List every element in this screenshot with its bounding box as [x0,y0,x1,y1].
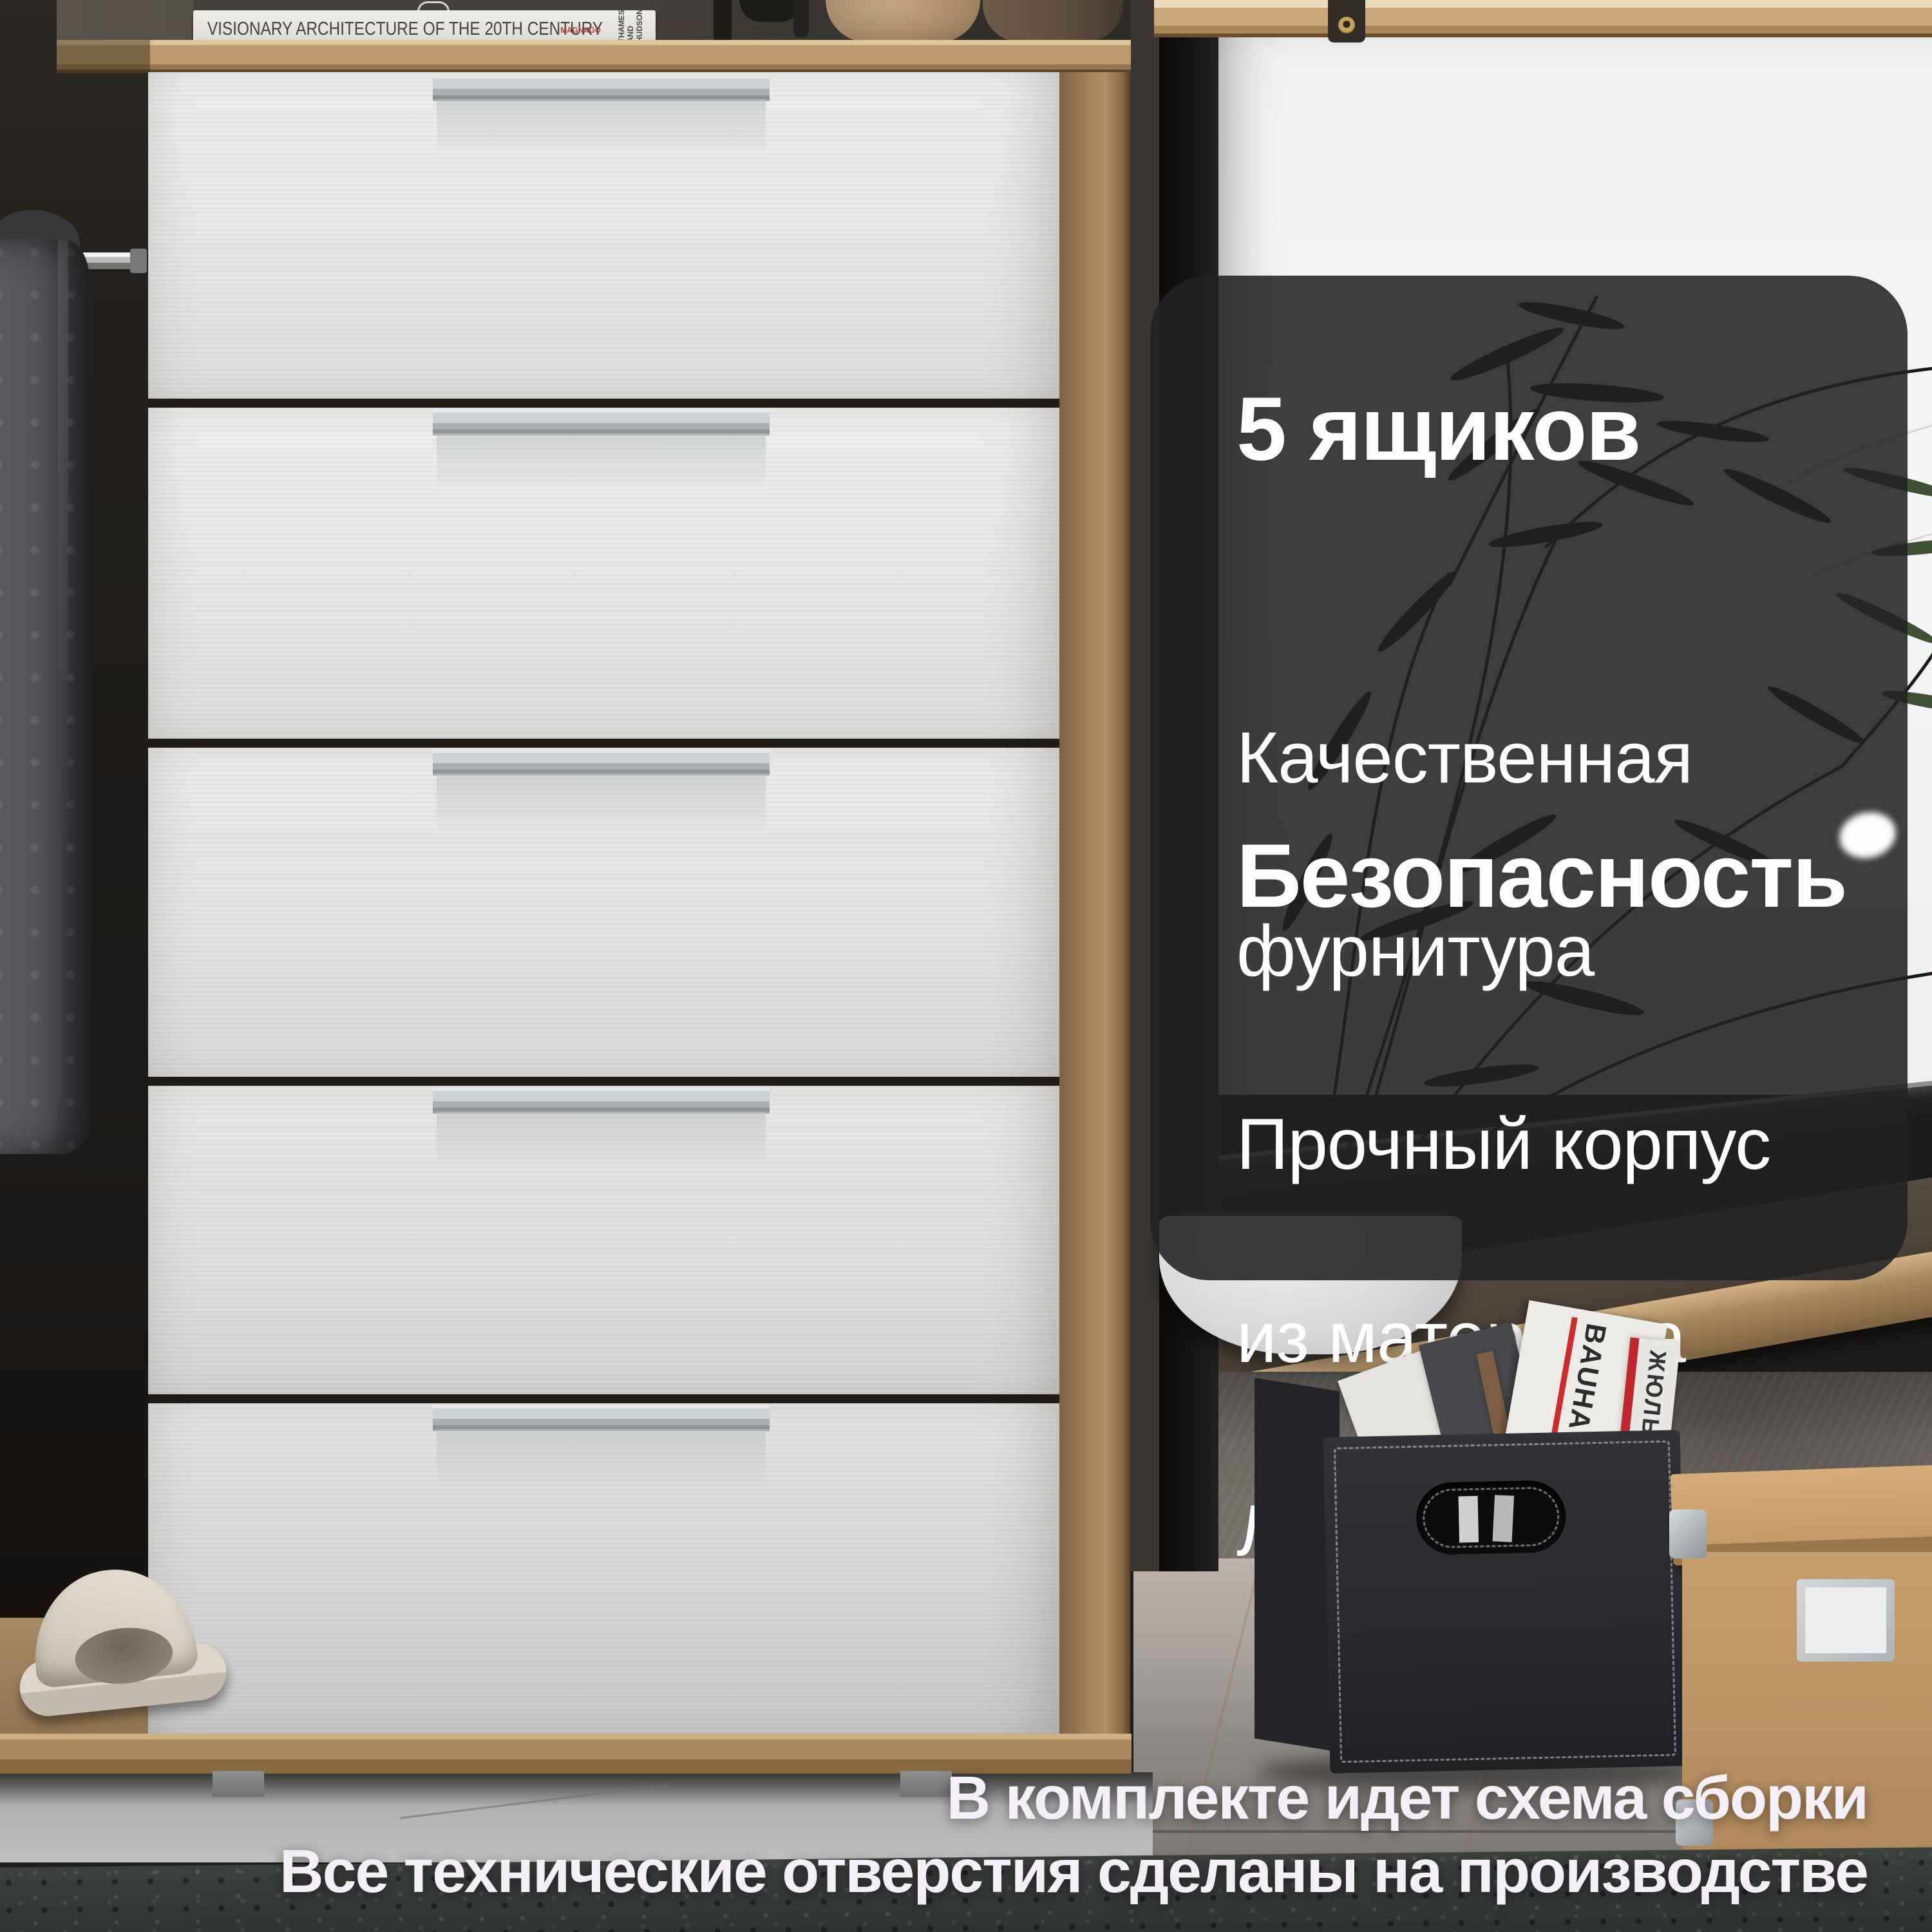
black-sculpture [793,0,809,37]
panel-heading-drawers: 5 ящиков [1236,381,1640,476]
magazine-edge-in-handle [1459,1496,1479,1543]
box-handle-cutout [1416,1480,1566,1555]
box-metal-corner [1669,1510,1707,1558]
magazine-edge-in-handle [1493,1495,1514,1542]
dresser-side-panel [1059,72,1130,1734]
dresser-foot [900,1771,952,1797]
hanging-garment [0,240,90,1154]
slipper [5,1557,244,1725]
dresser-top-board [57,40,1131,73]
strap-grommet-icon [1338,17,1355,33]
beige-vase [826,0,980,43]
dresser-top-board-shaded [57,40,150,73]
panel-text-material-line1: Прочный корпус [1236,1096,1770,1193]
wood-beam [1154,0,1932,37]
black-sculpture [714,0,732,43]
black-storage-box [1323,1430,1687,1773]
closet-rail-bracket [130,249,147,273]
beige-box-lid [1671,1465,1932,1566]
drawer-2-handle [433,409,770,433]
dresser-foot [213,1771,264,1797]
caption-holes: Все технические отверстия сделаны на про… [279,1837,1868,1907]
product-card: 5 ящиков Качественная фурнитура Безопасн… [0,0,1932,1932]
panel-heading-safety: Безопасность [1236,828,1846,923]
book-title: VISIONARY ARCHITECTURE OF THE 20TH CENTU… [207,19,603,40]
magazine-red-title: ЖЮЛЬ [1636,1349,1672,1439]
drawer-4-handle [433,1087,770,1112]
drawer-5-handle [433,1405,770,1429]
drawer-1-handle [433,75,770,99]
book-publisher: THAMES AND HUDSON [617,13,644,43]
panel-text-hardware-line1: Качественная [1236,710,1692,806]
caption-assembly: В комплекте идет схема сборки [947,1763,1868,1833]
box-label-frame [1797,1579,1895,1662]
drawer-3-handle [433,749,770,773]
dark-pot [983,0,1123,43]
